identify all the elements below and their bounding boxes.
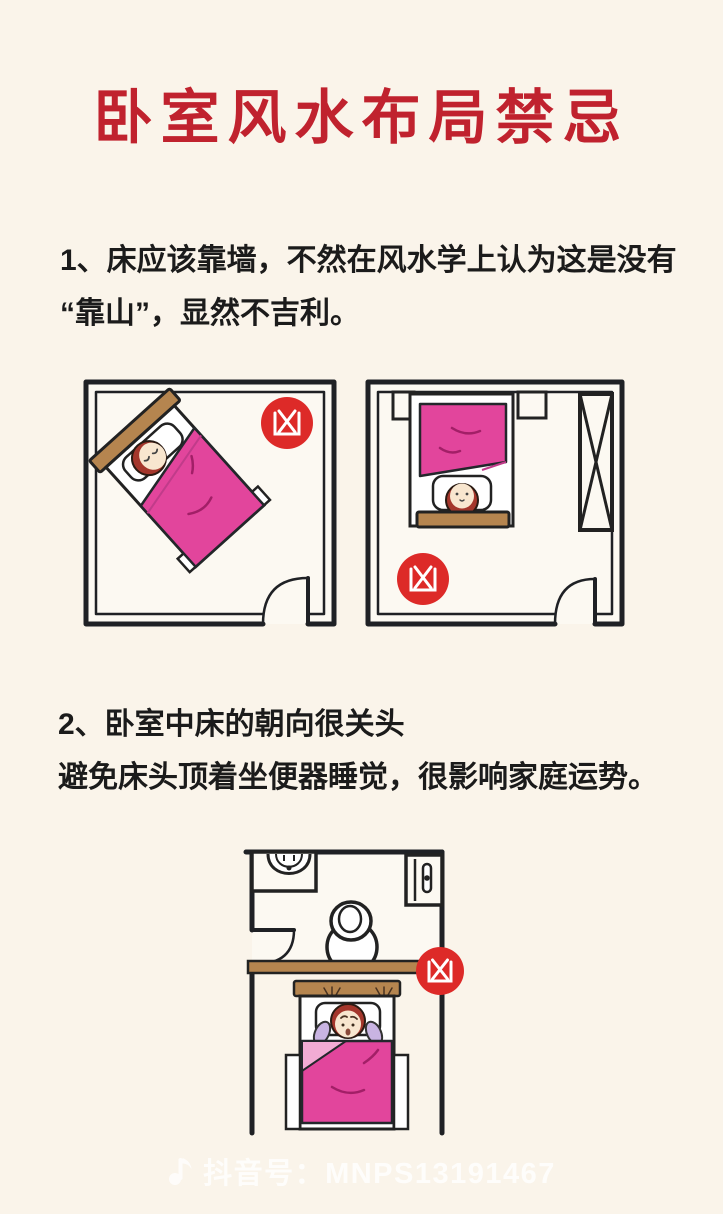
rule-1-text: 1、床应该靠墙，不然在风水学上认为这是没有 “靠山”，显然不吉利。 <box>60 234 677 340</box>
douyin-music-note-icon <box>167 1155 193 1187</box>
bathroom-bed-diagram <box>216 833 506 1165</box>
bed-headboard <box>417 512 509 527</box>
blanket <box>302 1041 392 1123</box>
bed-foot-post <box>394 1055 408 1129</box>
partition-wall <box>248 961 436 973</box>
rule-1-line-1: 1、床应该靠墙，不然在风水学上认为这是没有 <box>60 234 677 287</box>
bad-luck-badge <box>261 397 313 449</box>
poster-title: 卧室风水布局禁忌 <box>0 70 723 155</box>
wardrobe-icon <box>580 394 612 530</box>
sink-icon <box>252 852 316 891</box>
poster-page: 卧室风水布局禁忌 1、床应该靠墙，不然在风水学上认为这是没有 “靠山”，显然不吉… <box>0 0 723 1214</box>
nightstand-icon <box>518 392 546 418</box>
watermark: 抖音号：MNPS13191467 <box>0 1150 723 1192</box>
bed-against-toilet-wall-icon <box>286 981 408 1129</box>
room-diagram-2 <box>360 372 630 636</box>
room-diagram-1 <box>78 372 343 636</box>
rule-2-line-1: 2、卧室中床的朝向很关头 <box>58 698 658 751</box>
bed-head-out-icon <box>410 394 513 527</box>
shower-icon <box>406 855 442 905</box>
bad-luck-badge <box>397 553 449 605</box>
rule-2-line-2: 避免床头顶着坐便器睡觉，很影响家庭运势。 <box>58 751 658 804</box>
bad-luck-badge <box>416 947 464 995</box>
watermark-text: 抖音号：MNPS13191467 <box>203 1150 556 1192</box>
rule-1-line-2: “靠山”，显然不吉利。 <box>60 287 677 340</box>
rule-2-text: 2、卧室中床的朝向很关头 避免床头顶着坐便器睡觉，很影响家庭运势。 <box>58 698 658 804</box>
blanket <box>420 404 506 476</box>
bed-foot-post <box>286 1055 300 1129</box>
